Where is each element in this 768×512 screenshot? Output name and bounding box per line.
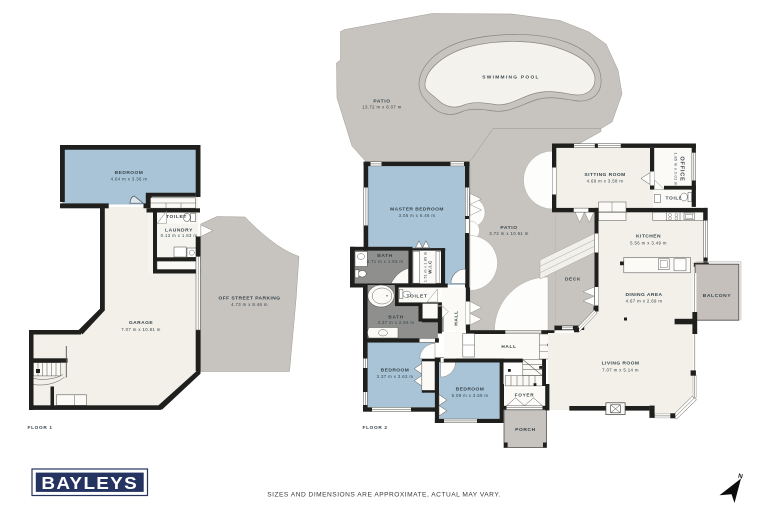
- svg-text:SWIMMING POOL: SWIMMING POOL: [482, 75, 539, 81]
- svg-text:FOYER: FOYER: [515, 392, 535, 397]
- svg-text:BALCONY: BALCONY: [703, 293, 732, 299]
- svg-text:4.69 m x 3.58 m: 4.69 m x 3.58 m: [587, 179, 624, 184]
- svg-text:3.37 m x 2.94 m: 3.37 m x 2.94 m: [378, 320, 415, 325]
- svg-text:FLOOR 2: FLOOR 2: [363, 425, 388, 430]
- svg-text:3.37 m x 3.63 m: 3.37 m x 3.63 m: [377, 374, 414, 379]
- svg-text:3.05 m x 6.46 m: 3.05 m x 6.46 m: [399, 213, 436, 218]
- svg-text:PORCH: PORCH: [515, 427, 536, 433]
- svg-text:3.72 m x 10.91 m: 3.72 m x 10.91 m: [489, 231, 529, 236]
- svg-text:7.07 m x 5.14 m: 7.07 m x 5.14 m: [602, 367, 639, 372]
- svg-text:TOILET: TOILET: [166, 214, 187, 220]
- svg-text:TOILET: TOILET: [407, 293, 428, 299]
- svg-text:4.64 m x 3.36 m: 4.64 m x 3.36 m: [111, 177, 148, 182]
- svg-text:5.09 m x 3.59 m: 5.09 m x 3.59 m: [452, 393, 489, 398]
- svg-text:DINING AREA: DINING AREA: [625, 292, 662, 298]
- svg-text:W.I.C: W.I.C: [428, 260, 433, 274]
- svg-text:SITTING ROOM: SITTING ROOM: [584, 172, 625, 178]
- svg-text:BEDROOM: BEDROOM: [381, 368, 410, 374]
- svg-text:BAYLEYS: BAYLEYS: [41, 473, 138, 492]
- svg-text:3.71 m x 1.83 m: 3.71 m x 1.83 m: [367, 259, 404, 264]
- svg-text:13.72 m x 8.07 m: 13.72 m x 8.07 m: [362, 105, 402, 110]
- svg-text:1.51 m x 1.89 m: 1.51 m x 1.89 m: [423, 252, 427, 282]
- svg-text:5.56 m x 3.49 m: 5.56 m x 3.49 m: [630, 241, 667, 246]
- svg-text:7.07 m x 10.81 m: 7.07 m x 10.81 m: [121, 327, 161, 332]
- svg-text:DECK: DECK: [565, 277, 581, 282]
- svg-text:4.73 m x 8.46 m: 4.73 m x 8.46 m: [231, 302, 268, 307]
- svg-text:PATIO: PATIO: [373, 98, 390, 104]
- svg-text:HALL: HALL: [501, 344, 516, 349]
- svg-text:4.67 m x 2.69 m: 4.67 m x 2.69 m: [626, 299, 663, 304]
- svg-text:BEDROOM: BEDROOM: [115, 170, 144, 176]
- svg-text:BEDROOM: BEDROOM: [456, 387, 485, 393]
- svg-text:HALL: HALL: [454, 310, 459, 325]
- svg-text:GARAGE: GARAGE: [129, 320, 153, 326]
- svg-text:1.85 m x 3.01 m: 1.85 m x 3.01 m: [674, 152, 679, 186]
- svg-text:SIZES AND DIMENSIONS ARE APPRO: SIZES AND DIMENSIONS ARE APPROXIMATE, AC…: [267, 492, 500, 499]
- svg-text:FLOOR 1: FLOOR 1: [28, 425, 53, 430]
- svg-text:OFF STREET PARKING: OFF STREET PARKING: [218, 295, 280, 301]
- svg-text:LIVING ROOM: LIVING ROOM: [602, 361, 640, 367]
- svg-text:KITCHEN: KITCHEN: [636, 234, 661, 240]
- svg-text:MASTER BEDROOM: MASTER BEDROOM: [390, 207, 444, 213]
- svg-text:0.13 m x 1.83 m: 0.13 m x 1.83 m: [161, 233, 198, 238]
